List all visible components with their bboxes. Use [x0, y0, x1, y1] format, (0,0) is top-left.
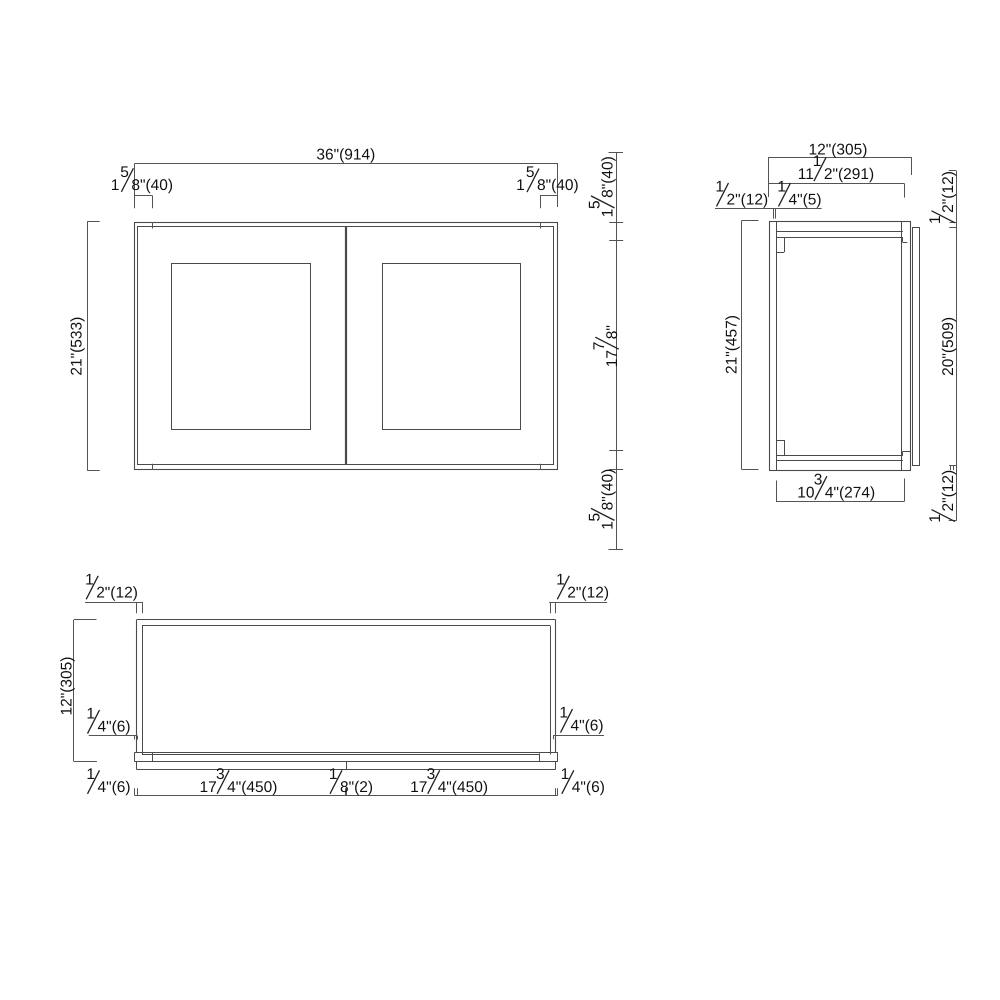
svg-text:5: 5 — [587, 513, 604, 522]
svg-text:3: 3 — [814, 472, 823, 489]
svg-text:4"(450): 4"(450) — [438, 779, 488, 796]
svg-text:8"(40): 8"(40) — [600, 469, 617, 511]
svg-text:4"(274): 4"(274) — [825, 485, 875, 502]
svg-text:10: 10 — [797, 485, 815, 502]
svg-text:1: 1 — [777, 178, 786, 195]
svg-text:21"(533): 21"(533) — [69, 317, 86, 376]
svg-text:1: 1 — [927, 514, 944, 523]
svg-text:8"(40): 8"(40) — [537, 177, 579, 194]
svg-text:1: 1 — [715, 178, 724, 195]
svg-text:1: 1 — [329, 766, 338, 783]
svg-text:3: 3 — [216, 766, 225, 783]
svg-text:17: 17 — [410, 779, 427, 796]
svg-text:17: 17 — [200, 779, 217, 796]
svg-text:20"(509): 20"(509) — [940, 317, 957, 376]
svg-text:1: 1 — [86, 766, 95, 783]
svg-text:3: 3 — [427, 766, 436, 783]
svg-text:4"(5): 4"(5) — [789, 191, 822, 208]
svg-text:1: 1 — [85, 571, 94, 588]
svg-text:12"(305): 12"(305) — [58, 657, 75, 716]
svg-text:1: 1 — [516, 177, 525, 194]
svg-text:17: 17 — [604, 350, 621, 367]
svg-text:1: 1 — [111, 177, 120, 194]
svg-text:4"(6): 4"(6) — [98, 779, 131, 796]
svg-text:2"(12): 2"(12) — [727, 191, 769, 208]
svg-text:21"(457): 21"(457) — [724, 315, 741, 374]
svg-text:1: 1 — [86, 706, 95, 723]
svg-text:4"(6): 4"(6) — [98, 719, 131, 736]
svg-text:8"(40): 8"(40) — [131, 177, 173, 194]
svg-text:1: 1 — [556, 571, 565, 588]
svg-text:5: 5 — [587, 200, 604, 209]
svg-text:8"(2): 8"(2) — [340, 779, 373, 796]
svg-text:8": 8" — [604, 325, 621, 339]
svg-text:36"(914): 36"(914) — [316, 146, 375, 163]
svg-text:1: 1 — [559, 705, 568, 722]
svg-text:1: 1 — [561, 766, 570, 783]
svg-text:2"(12): 2"(12) — [940, 171, 957, 213]
svg-text:2"(12): 2"(12) — [96, 584, 138, 601]
svg-text:5: 5 — [120, 164, 129, 181]
svg-text:2"(12): 2"(12) — [940, 470, 957, 512]
svg-text:7: 7 — [591, 342, 608, 351]
svg-text:5: 5 — [526, 164, 535, 181]
svg-text:1: 1 — [927, 215, 944, 224]
svg-text:11: 11 — [798, 166, 814, 183]
svg-text:2"(12): 2"(12) — [567, 584, 609, 601]
svg-text:4"(450): 4"(450) — [227, 779, 277, 796]
svg-text:4"(6): 4"(6) — [571, 718, 604, 735]
svg-text:8"(40): 8"(40) — [600, 156, 617, 198]
svg-text:2"(291): 2"(291) — [824, 166, 874, 183]
svg-text:1: 1 — [813, 153, 822, 170]
svg-text:4"(6): 4"(6) — [572, 779, 605, 796]
